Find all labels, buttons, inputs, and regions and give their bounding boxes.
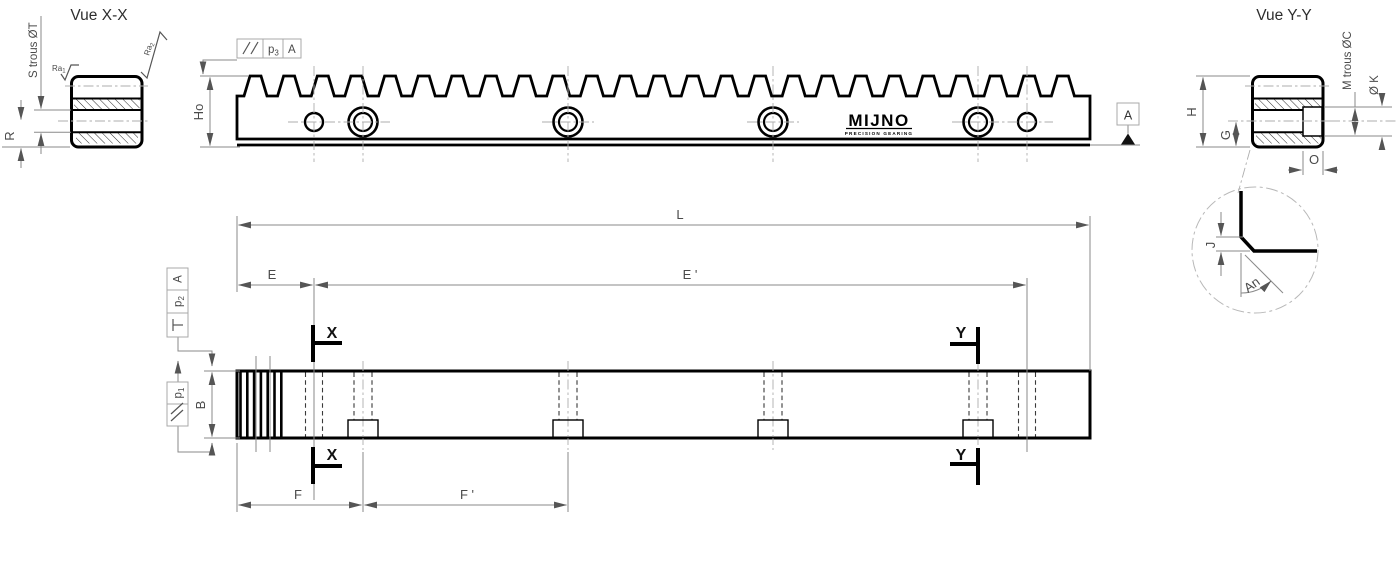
j-label: J [1203,242,1218,249]
xx-hatch-lower [76,133,138,144]
tooth-stripes [241,373,282,437]
hole-centerlines-top [288,66,1053,162]
brand-logo: MIJNO PRECISION GEARING [845,111,913,136]
l-label: L [676,207,683,222]
fcf-top-datum: A [288,44,296,56]
dimension-ok: Ø K [1369,75,1382,150]
dimension-b: B [193,371,240,438]
f-prime-label: F ' [460,487,474,502]
m-trous-label: M trous ØC [1342,31,1354,90]
chamfer-detail: J An [1192,150,1318,313]
dimension-g: G [1218,123,1236,146]
cut-y-label-top: Y [956,325,967,342]
technical-drawing-page: MIJNO PRECISION GEARING Ho p3 A [0,0,1400,569]
dimension-o: O [1288,151,1338,175]
yy-hatch-lower-left [1256,133,1303,144]
roughness-ra2: Ra2 [141,32,167,78]
counterbore-pocket [1303,107,1322,136]
b-label: B [193,401,208,410]
f-label: F [294,487,302,502]
h-label: H [1184,107,1199,116]
dimension-ho: Ho [191,76,248,147]
yy-hatch-lower-right [1303,137,1321,144]
dimension-f: F F ' [237,443,568,512]
datum-letter: A [1124,109,1133,123]
section-view-yy: Vue Y-Y M trous ØC Ø K H [1184,7,1396,313]
logo-tagline: PRECISION GEARING [845,131,913,136]
g-label: G [1218,130,1233,140]
gear-rack-drawing: MIJNO PRECISION GEARING Ho p3 A [0,0,1400,569]
fcf-perp-datum: A [173,275,185,283]
s-trous-label: S trous ØT [28,22,40,78]
e-label: E [268,267,277,282]
ra1-label: Ra1 [52,64,66,75]
xx-hatch-upper [74,100,140,110]
section-view-xx: Vue X-X S trous ØT R Ra1 [2,7,167,168]
an-label: An [1241,274,1263,295]
plan-outline [237,371,1090,438]
dimension-s-trous-ot: S trous ØT [28,16,71,154]
dimension-h: H [1184,76,1250,147]
datum-triangle [1121,134,1135,145]
ok-label: Ø K [1369,75,1381,95]
cut-x-label-top: X [327,325,338,342]
logo-name: MIJNO [848,111,909,130]
cut-x-label-bottom: X [327,447,338,464]
view-xx-title: Vue X-X [70,7,128,24]
top-side-view: MIJNO PRECISION GEARING Ho p3 A [191,39,1140,162]
fcf-perpendicular-p2: p2 A [167,268,212,366]
r-label: R [2,131,17,140]
o-label: O [1309,152,1319,167]
cut-y-label-bottom: Y [956,447,967,464]
e-prime-label: E ' [683,267,698,282]
ho-label: Ho [191,104,206,121]
dimension-l: L [237,207,1090,371]
fcf-parallel-p3: p3 A [203,39,301,74]
view-yy-title: Vue Y-Y [1256,7,1311,24]
bottom-plan-view: X X Y Y L E E ' [167,207,1090,512]
ra2-label: Ra2 [142,40,156,57]
datum-a-symbol: A [1090,103,1140,145]
dimension-m-trous-oc: M trous ØC [1325,31,1396,136]
